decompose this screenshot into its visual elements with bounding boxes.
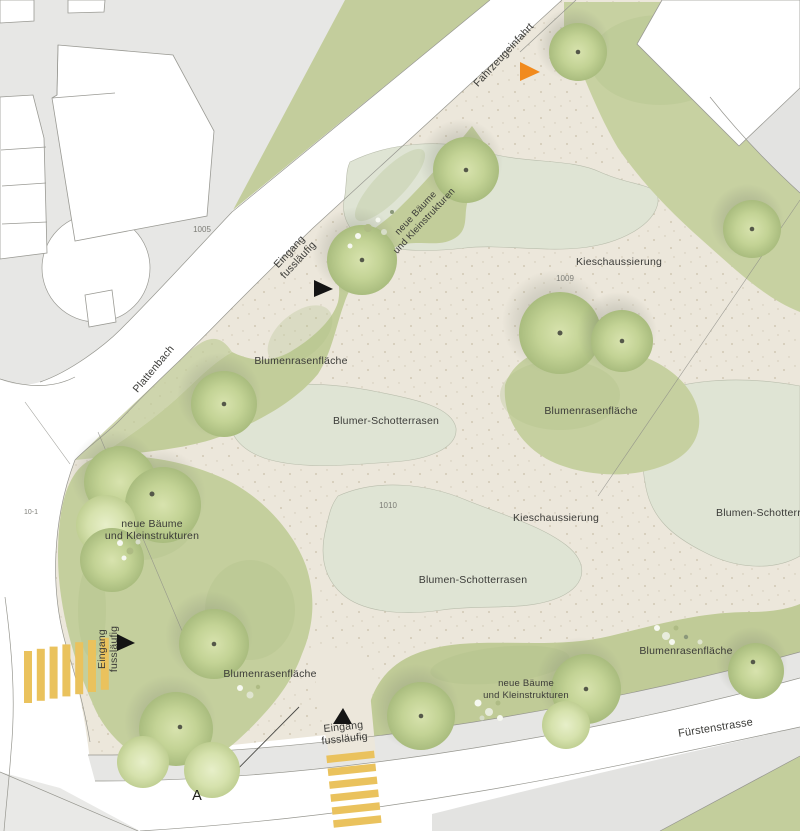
building-small-2 [68,0,105,13]
parcel-1009: 1009 [556,274,574,283]
label-eingang-bottom: Eingang fussläufig [320,719,369,748]
entrance-label-line1: Eingang [96,629,108,669]
label-kieschaussierung-2: Kieschaussierung [513,512,599,524]
tree [577,292,657,372]
tree [373,664,459,750]
neue-baeume-line2: und Kleinstrukturen [105,530,199,542]
parcel-1005: 1005 [193,225,211,234]
label-blumen-schotterrasen-right: Blumen-Schotterrasen [716,507,800,519]
neue-baeume-line1: neue Bäume [498,678,554,689]
label-blumenrasenflaeche-1: Blumenrasenfläche [254,355,347,367]
label-blumenrasenflaeche-4: Blumenrasenfläche [639,645,732,657]
label-blumenrasenflaeche-3: Blumenrasenfläche [223,668,316,680]
neue-baeume-line2: und Kleinstrukturen [483,690,569,701]
section-marker-a: A [192,788,202,804]
label-blumen-schotterrasen-center: Blumen-Schotterrasen [419,574,527,586]
parcel-1010: 1010 [379,501,397,510]
parcel-10-1: 10-1 [24,509,38,516]
building-small-1 [0,0,34,23]
label-kieschaussierung-1: Kieschaussierung [576,256,662,268]
label-blumenrasenflaeche-2: Blumenrasenfläche [544,405,637,417]
label-blumer-schotterrasen: Blumer-Schotterrasen [333,415,439,427]
tree [177,353,261,437]
tree [716,627,788,699]
tree [710,184,784,258]
label-eingang-left: Eingang fussläufig [96,626,120,672]
site-plan-drawing: Fahrzeugeinfahrt Eingang fussläufig Plat… [0,0,800,831]
courtyard-notch [85,290,116,327]
tree [312,207,400,295]
site-plan: Fahrzeugeinfahrt Eingang fussläufig Plat… [0,0,800,831]
entrance-label-line2: fussläufig [108,626,120,672]
tree [536,7,610,81]
tree [165,591,253,679]
neue-baeume-line1: neue Bäume [121,518,183,530]
